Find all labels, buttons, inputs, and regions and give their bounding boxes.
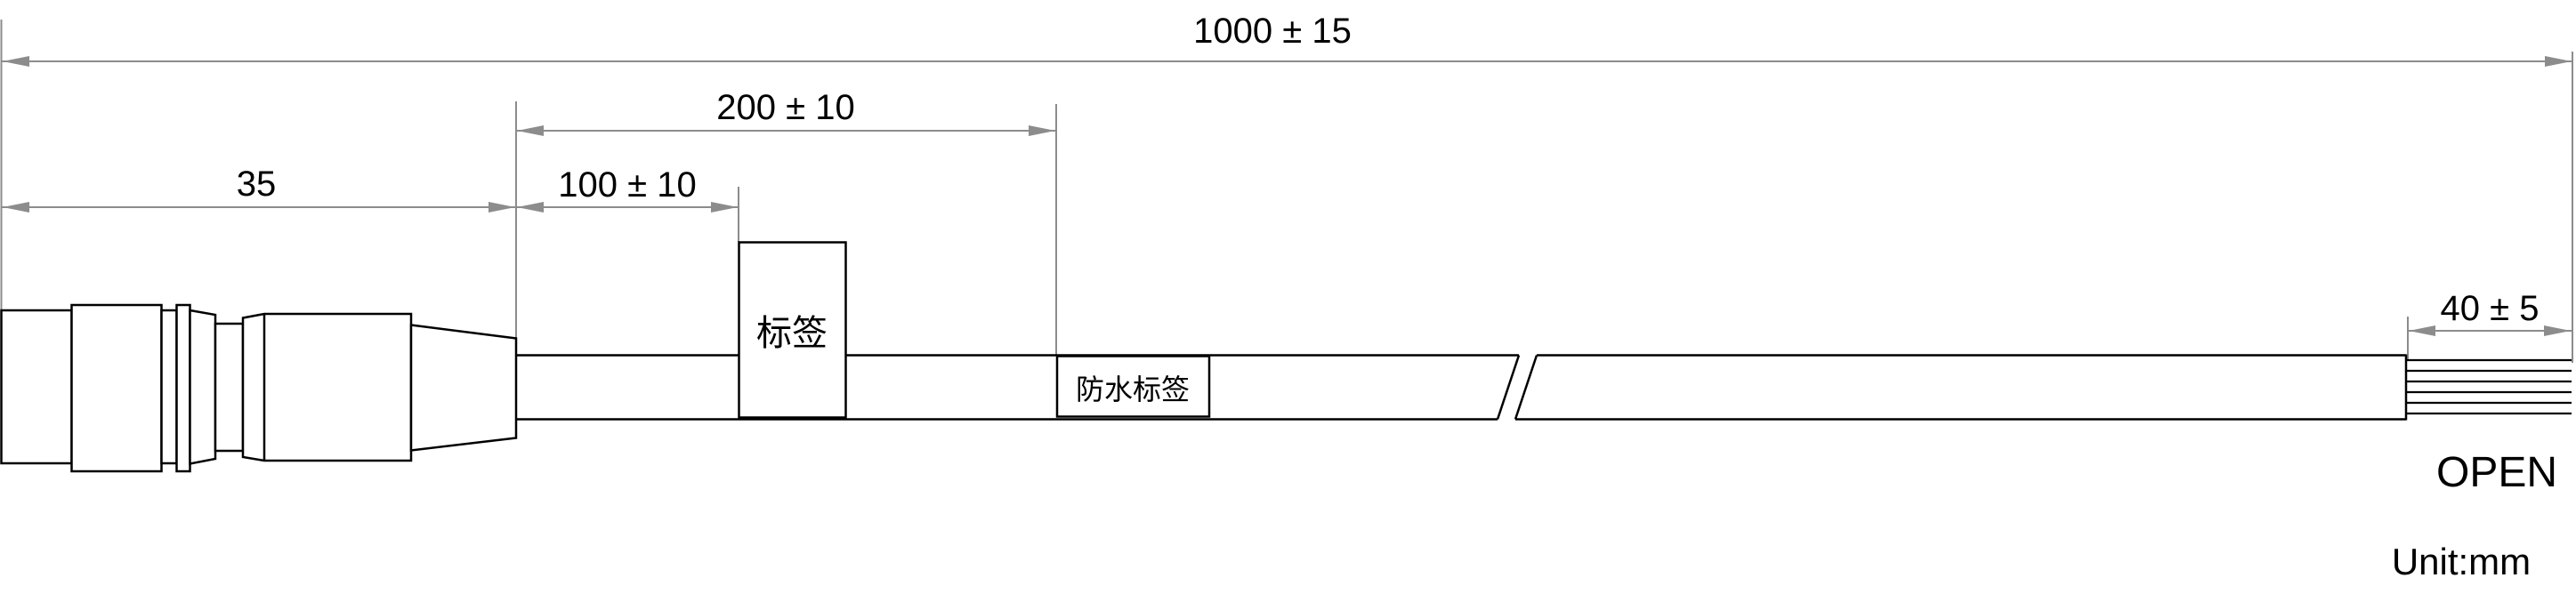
connector-taper-collar xyxy=(190,310,216,464)
connector-cap-nut xyxy=(243,314,411,461)
cable-break-slash-2 xyxy=(1515,356,1537,420)
cable-break-slash-1 xyxy=(1498,356,1519,420)
cable-segment-2 xyxy=(1515,356,2406,420)
dimension-text-label-distance: 100 ± 10 xyxy=(558,165,696,205)
arrow-40-right xyxy=(2544,325,2571,336)
connector-groove-band xyxy=(162,310,177,463)
arrow-35-left xyxy=(3,202,29,213)
connector-back-cap xyxy=(2,310,72,463)
connector-neck xyxy=(215,324,243,451)
dimension-text-open-wires: 40 ± 5 xyxy=(2441,289,2540,328)
dimension-arrowheads xyxy=(3,56,2572,336)
wire-strands xyxy=(2406,360,2572,413)
dimension-text-overall: 1000 ± 15 xyxy=(1193,12,1352,51)
arrow-200-right xyxy=(1029,125,1055,136)
annotation-texts: 1000 ± 15 200 ± 10 100 ± 10 35 40 ± 5 标签… xyxy=(237,12,2557,582)
connector-strain-relief-cone xyxy=(411,325,516,451)
waterproof-label-text: 防水标签 xyxy=(1076,373,1190,405)
connector-knurl-ring xyxy=(177,305,190,471)
cable-drawing-canvas: 1000 ± 15 200 ± 10 100 ± 10 35 40 ± 5 标签… xyxy=(0,0,2576,602)
extension-lines xyxy=(2,20,2573,363)
unit-note-text: Unit:mm xyxy=(2392,541,2531,582)
open-end-text: OPEN xyxy=(2436,449,2557,496)
arrow-40-left xyxy=(2409,325,2435,336)
arrow-35-right xyxy=(489,202,515,213)
arrow-100-right xyxy=(711,202,738,213)
connector-knurl-main xyxy=(72,305,162,471)
label-box-text: 标签 xyxy=(756,314,828,353)
dimension-lines xyxy=(2,61,2572,331)
arrow-100-left xyxy=(517,202,544,213)
cable-technical-drawing: 1000 ± 15 200 ± 10 100 ± 10 35 40 ± 5 标签… xyxy=(0,0,2576,602)
arrow-overall-right xyxy=(2545,56,2572,67)
connector xyxy=(2,305,517,471)
dimension-text-waterproof-distance: 200 ± 10 xyxy=(716,88,854,127)
arrow-overall-left xyxy=(3,56,29,67)
dimension-text-connector-length: 35 xyxy=(237,165,277,204)
cable-segment-1 xyxy=(516,356,1519,420)
arrow-200-left xyxy=(517,125,544,136)
